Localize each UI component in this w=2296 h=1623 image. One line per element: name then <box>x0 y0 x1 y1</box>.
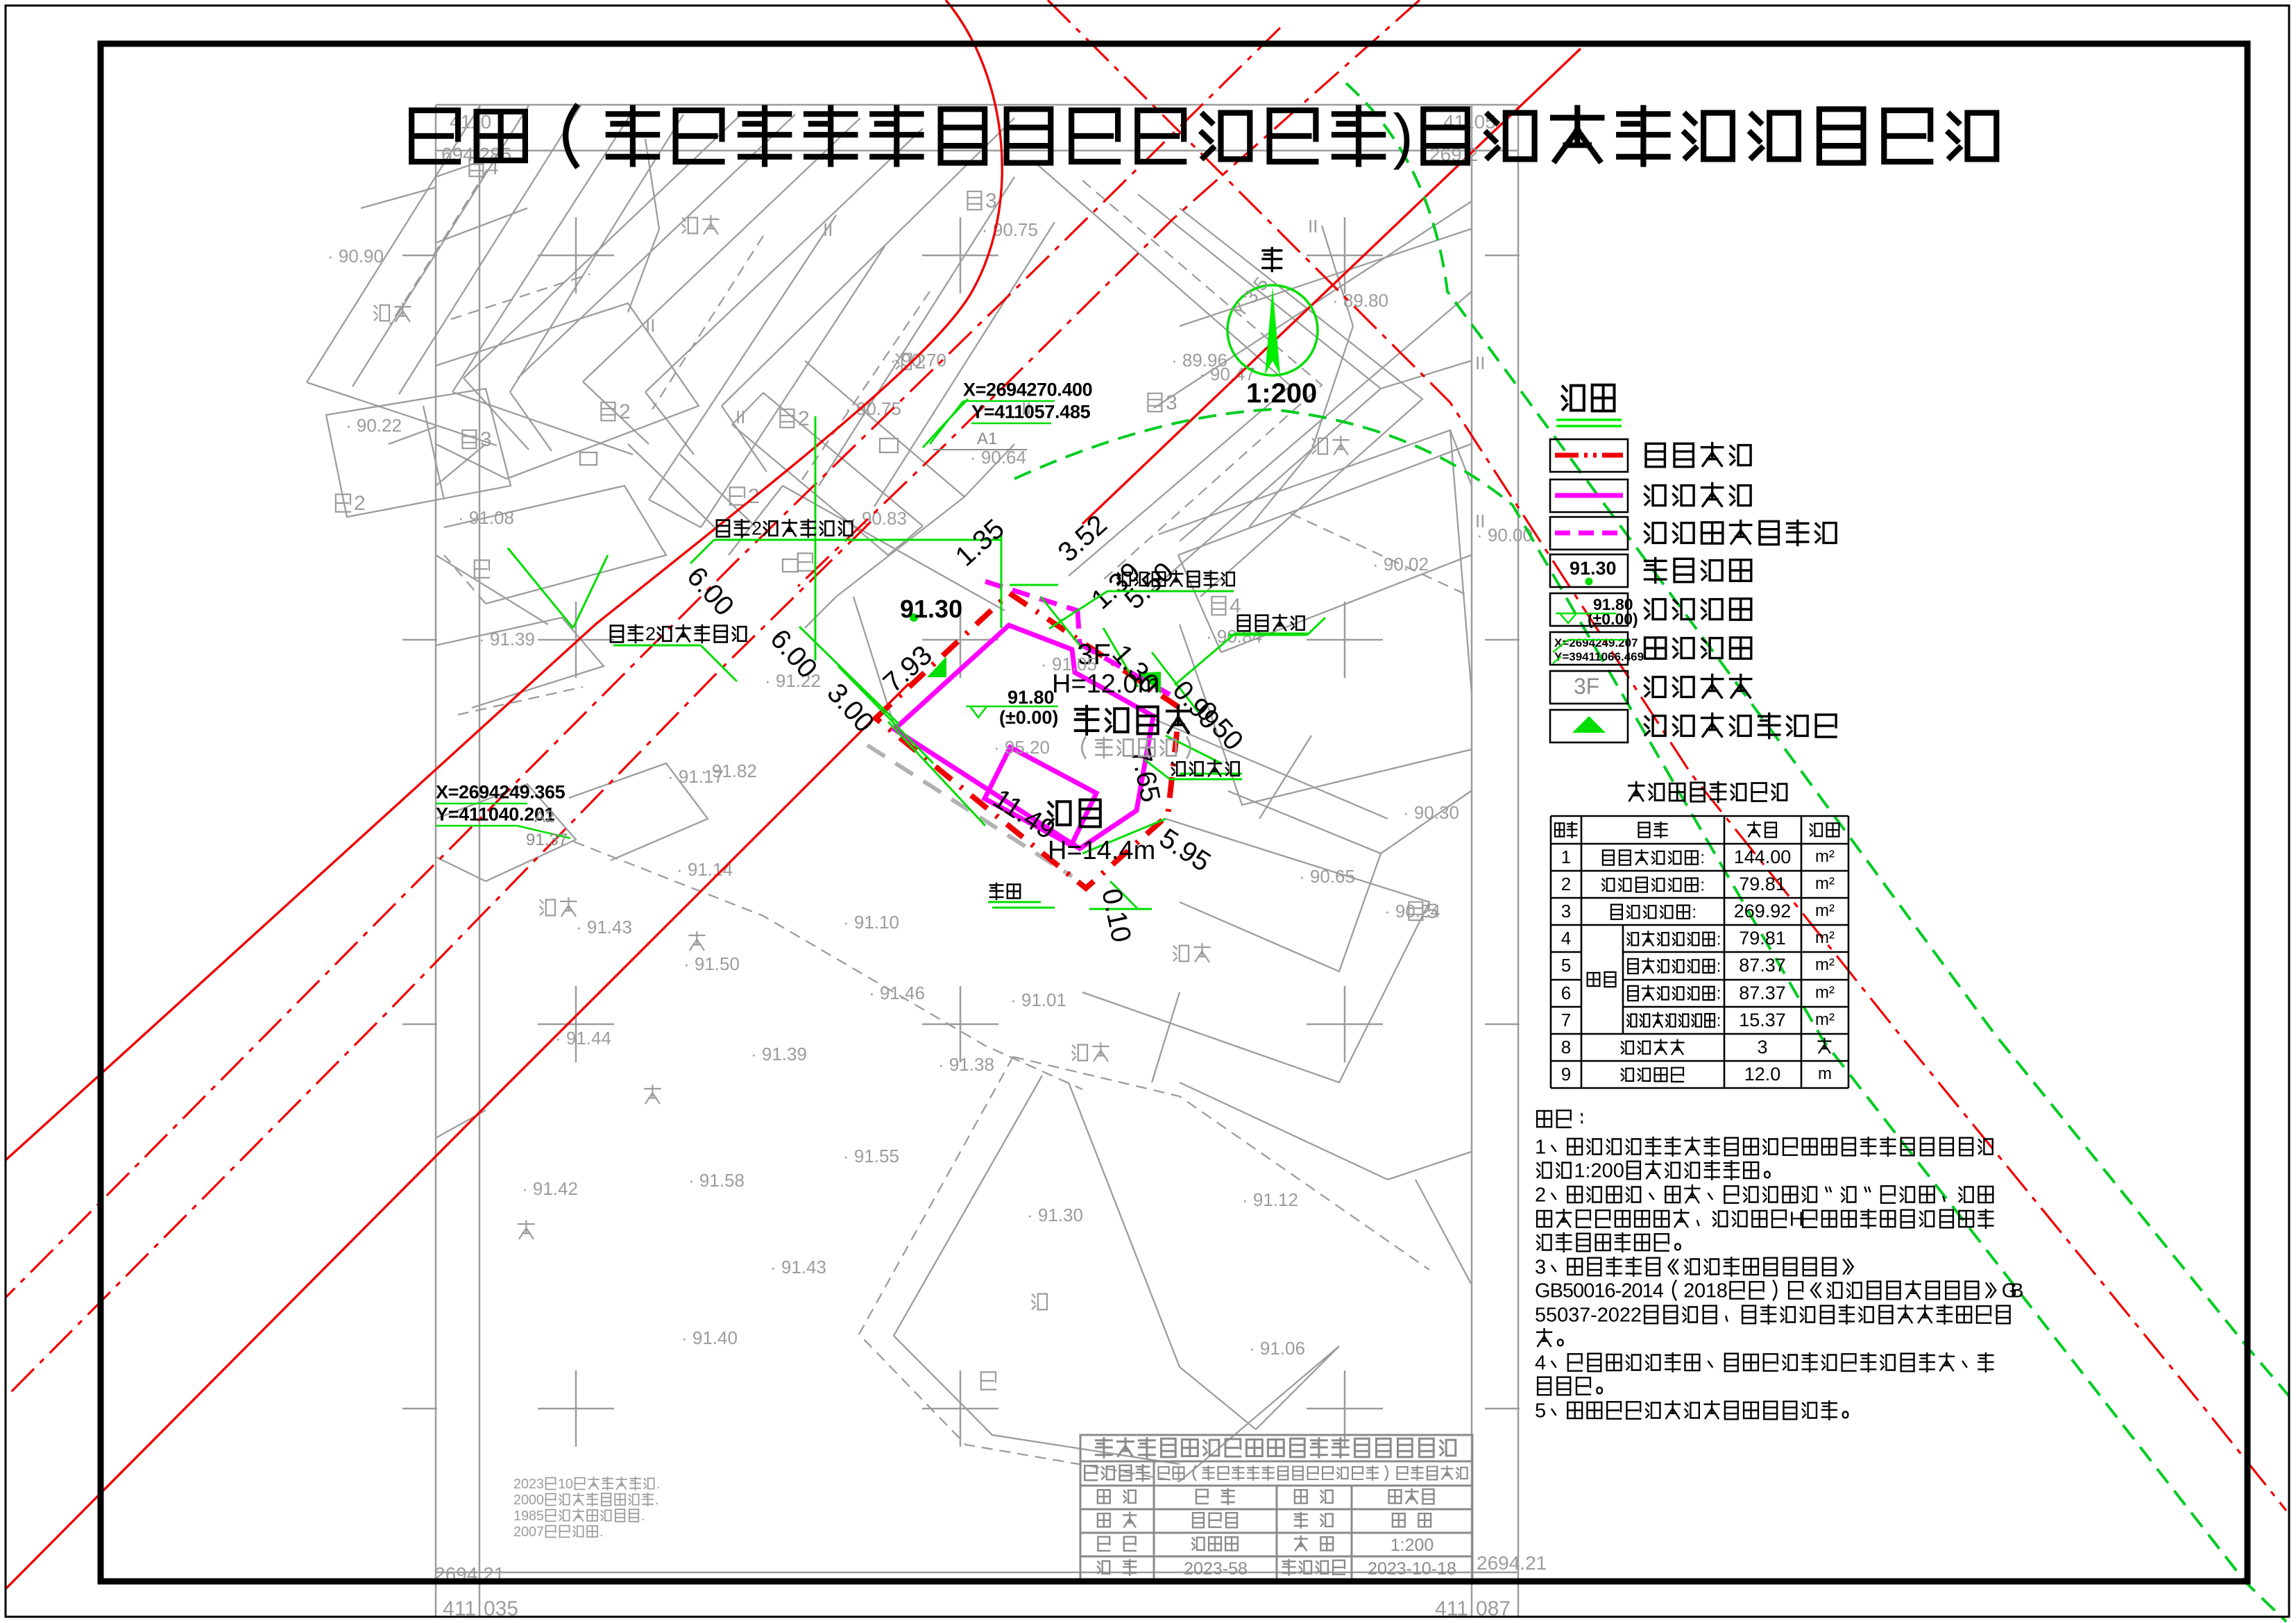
svg-text::: : <box>1692 903 1697 921</box>
svg-text:H=14.4m: H=14.4m <box>1048 836 1155 865</box>
svg-text:2023: 2023 <box>513 1477 544 1492</box>
svg-text:3: 3 <box>1535 1256 1546 1278</box>
svg-text:2: 2 <box>1535 1184 1546 1206</box>
svg-text:91.80: 91.80 <box>1007 687 1055 708</box>
svg-text:· 91.40: · 91.40 <box>681 1327 738 1348</box>
svg-text:7: 7 <box>1561 1010 1571 1030</box>
svg-text:· 91.08: · 91.08 <box>458 507 514 528</box>
svg-text:2: 2 <box>354 492 366 515</box>
svg-text:· 91.50: · 91.50 <box>683 953 740 974</box>
svg-text:269.92: 269.92 <box>1734 901 1792 921</box>
svg-text:87.37: 87.37 <box>1739 955 1786 976</box>
svg-text:4: 4 <box>1561 928 1571 949</box>
svg-text:· 91.58: · 91.58 <box>688 1170 745 1191</box>
svg-text:144.00: 144.00 <box>1734 847 1792 867</box>
svg-text:m²: m² <box>1815 847 1835 866</box>
svg-text:91.30: 91.30 <box>1570 558 1617 579</box>
svg-text:15.37: 15.37 <box>1739 1010 1786 1030</box>
svg-text:87.37: 87.37 <box>1739 983 1786 1003</box>
svg-text:91.30: 91.30 <box>900 595 962 623</box>
svg-text:· 91.10: · 91.10 <box>843 912 899 933</box>
svg-text:· 91.38: · 91.38 <box>938 1054 994 1075</box>
svg-text:II: II <box>1475 352 1485 373</box>
svg-text:1: 1 <box>1535 1136 1546 1158</box>
svg-text::: : <box>1717 1012 1721 1030</box>
svg-text:m: m <box>1818 1064 1832 1083</box>
svg-text:· 89.96: · 89.96 <box>1171 350 1227 371</box>
svg-text:1:200: 1:200 <box>1574 1159 1624 1182</box>
svg-text:· 90.24: · 90.24 <box>1384 901 1440 921</box>
svg-text:1: 1 <box>1561 847 1571 867</box>
svg-text:2: 2 <box>1561 874 1571 894</box>
svg-text:A2: A2 <box>534 808 554 826</box>
svg-text:H: H <box>1789 1208 1804 1230</box>
svg-text:· 90.30: · 90.30 <box>1403 802 1459 823</box>
svg-text:2023-10-18: 2023-10-18 <box>1368 1559 1456 1579</box>
svg-text:· 90.84: · 90.84 <box>1206 626 1262 647</box>
svg-text:· 91.39: · 91.39 <box>479 629 535 649</box>
svg-text:· 91.46: · 91.46 <box>869 983 925 1003</box>
svg-text:2: 2 <box>798 407 810 430</box>
svg-text:m²: m² <box>1815 874 1835 893</box>
svg-text:9: 9 <box>1561 1064 1571 1085</box>
svg-text:· 91.30: · 91.30 <box>1027 1205 1083 1225</box>
svg-text:5: 5 <box>1561 955 1571 976</box>
svg-text:(±0.00): (±0.00) <box>999 707 1058 728</box>
svg-text::: : <box>1717 958 1721 976</box>
svg-text:91.37: 91.37 <box>526 831 568 849</box>
svg-text:· 90.75: · 90.75 <box>982 219 1038 240</box>
svg-text:5: 5 <box>1535 1400 1546 1422</box>
svg-text:.: . <box>599 1524 604 1540</box>
svg-text:· 91.55: · 91.55 <box>843 1146 899 1166</box>
svg-text:X=2694249.207: X=2694249.207 <box>1554 636 1638 649</box>
svg-text:X=2694270.400: X=2694270.400 <box>963 380 1093 400</box>
svg-text:Y=39411066.469: Y=39411066.469 <box>1554 650 1644 663</box>
svg-text:II: II <box>1308 216 1318 237</box>
svg-text:· 91.17: · 91.17 <box>667 766 724 787</box>
svg-text:Y=411057.485: Y=411057.485 <box>971 402 1091 423</box>
svg-text:1:200: 1:200 <box>1391 1536 1434 1555</box>
svg-text:II: II <box>645 315 655 336</box>
svg-text:55037-2022: 55037-2022 <box>1535 1304 1642 1326</box>
svg-text:4: 4 <box>1535 1352 1546 1374</box>
svg-text:3: 3 <box>1757 1037 1767 1057</box>
svg-text:m²: m² <box>1815 983 1835 1002</box>
svg-text:.: . <box>656 1477 661 1492</box>
svg-text:3: 3 <box>985 189 997 212</box>
svg-text:A1: A1 <box>977 430 997 448</box>
svg-text:m²: m² <box>1815 1010 1835 1029</box>
svg-text:8: 8 <box>1561 1037 1571 1057</box>
svg-text:m²: m² <box>1815 928 1835 947</box>
svg-text:X=2694249.365: X=2694249.365 <box>436 782 566 803</box>
svg-text:6: 6 <box>1561 983 1571 1003</box>
svg-text:2007: 2007 <box>513 1524 544 1540</box>
svg-text:2023-58: 2023-58 <box>1184 1559 1248 1579</box>
svg-text:· 91.12: · 91.12 <box>1242 1189 1298 1210</box>
svg-text:1985: 1985 <box>513 1509 544 1524</box>
svg-text:3: 3 <box>1166 391 1177 414</box>
svg-text:· 95.20: · 95.20 <box>994 737 1050 758</box>
svg-text:· 91.06: · 91.06 <box>1249 1338 1305 1359</box>
svg-text:· 89.80: · 89.80 <box>1332 290 1388 311</box>
svg-text:79.81: 79.81 <box>1739 928 1786 949</box>
svg-text:· 91.42: · 91.42 <box>522 1178 578 1199</box>
svg-text:2694.21: 2694.21 <box>1477 1552 1547 1574</box>
svg-text::: : <box>1717 985 1721 1003</box>
svg-text:3: 3 <box>480 428 492 451</box>
svg-text:· 91.44: · 91.44 <box>555 1028 611 1048</box>
svg-text:· 90.83: · 90.83 <box>851 508 907 529</box>
svg-text:.: . <box>641 1509 645 1524</box>
svg-text:2: 2 <box>619 400 631 423</box>
svg-text:): ) <box>1393 101 1413 170</box>
svg-text:12.0: 12.0 <box>1744 1064 1781 1085</box>
svg-text:m²: m² <box>1815 901 1835 920</box>
svg-text:3: 3 <box>1561 901 1571 921</box>
svg-text:· 91.39: · 91.39 <box>751 1044 807 1064</box>
svg-text:10: 10 <box>558 1477 573 1492</box>
svg-text:· 90.65: · 90.65 <box>1299 866 1355 887</box>
svg-text:· 91.43: · 91.43 <box>576 917 632 937</box>
svg-text::: : <box>1700 876 1705 894</box>
svg-text:2: 2 <box>751 518 762 539</box>
svg-text:2000: 2000 <box>513 1493 544 1508</box>
svg-text:.: . <box>655 1493 659 1508</box>
svg-text:· 90.22: · 90.22 <box>346 415 402 436</box>
svg-text:79.81: 79.81 <box>1739 874 1786 894</box>
svg-text:3F: 3F <box>1574 674 1599 699</box>
svg-text:2: 2 <box>645 624 656 645</box>
svg-text:1:200: 1:200 <box>1246 378 1317 409</box>
svg-text:GB: GB <box>2002 1280 2024 1302</box>
svg-text:· 91.05: · 91.05 <box>1041 654 1097 674</box>
svg-text:· 90.02: · 90.02 <box>1372 554 1429 575</box>
svg-text:II: II <box>823 219 833 240</box>
svg-text:2018: 2018 <box>1683 1280 1728 1302</box>
svg-text::: : <box>1700 849 1705 867</box>
svg-text:4: 4 <box>1230 595 1241 618</box>
svg-text:· 90.70: · 90.70 <box>890 350 946 371</box>
svg-text:m²: m² <box>1815 955 1835 974</box>
svg-text::: : <box>1717 931 1721 949</box>
svg-text:· 90.90: · 90.90 <box>328 246 384 266</box>
svg-text:II: II <box>1475 511 1485 532</box>
svg-text:· 91.43: · 91.43 <box>770 1257 826 1277</box>
svg-text:II: II <box>735 407 745 427</box>
svg-text:GB50016-2014: GB50016-2014 <box>1535 1280 1664 1302</box>
svg-text:· 91.01: · 91.01 <box>1010 989 1066 1010</box>
